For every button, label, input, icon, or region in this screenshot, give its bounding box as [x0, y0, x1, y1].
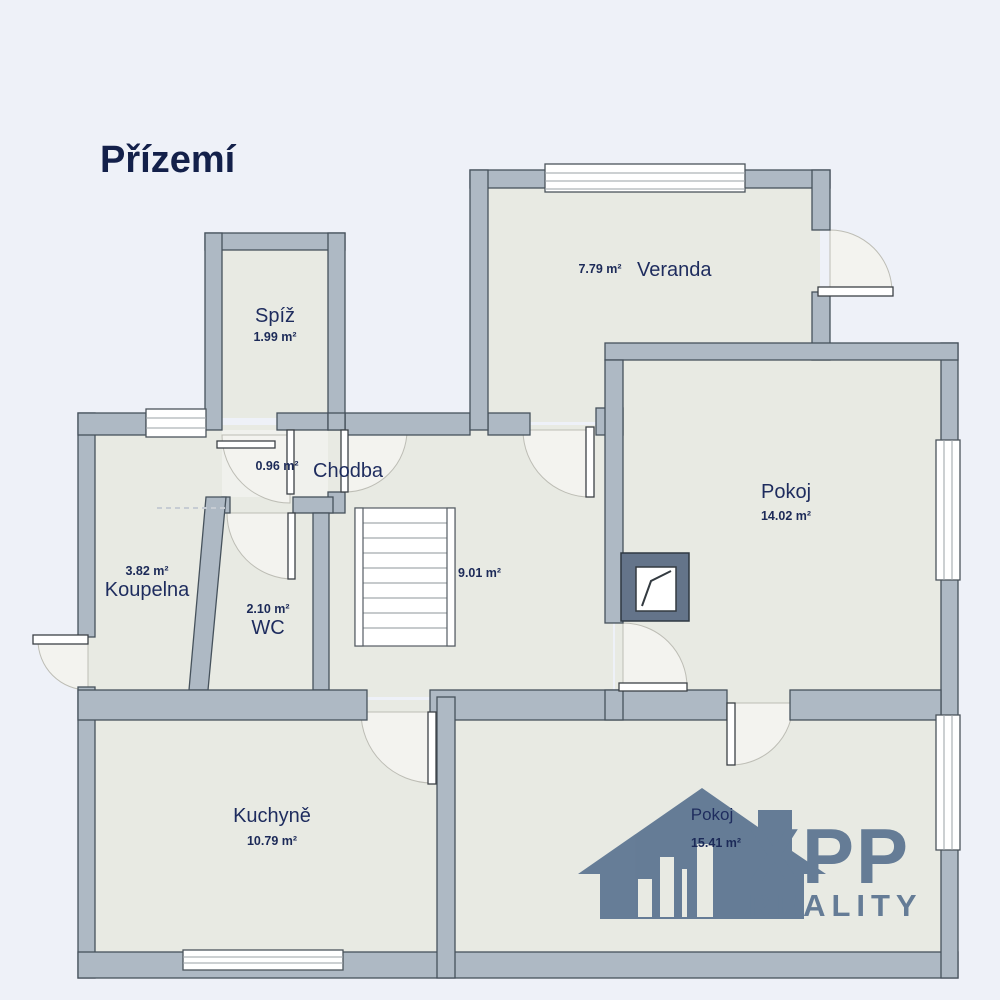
door-leaf-icon: [586, 427, 594, 497]
door-swing-icon: [38, 640, 88, 690]
room-label-wc: WC: [251, 617, 284, 639]
brand-name: XPP: [748, 812, 910, 900]
window-icon: [183, 950, 343, 970]
door-leaf-icon: [619, 683, 687, 691]
room-fill-veranda-sw: [480, 350, 613, 422]
room-label-chodba: Chodba: [313, 460, 384, 482]
vestibule-area: 0.96 m²: [255, 459, 298, 473]
room-area-spiz: 1.99 m²: [253, 330, 296, 344]
house-logo-bar: [682, 869, 687, 917]
chimney-icon: [621, 553, 689, 621]
door-swing-icon: [830, 230, 892, 292]
page-title: Přízemí: [100, 139, 237, 181]
room-area-pokoj2: 15.41 m²: [691, 836, 741, 850]
stairs-icon: [355, 508, 455, 646]
door-leaf-icon: [727, 703, 735, 765]
room-area-kuchyne: 10.79 m²: [247, 834, 297, 848]
room-label-pokoj2: Pokoj: [691, 805, 734, 824]
house-logo-bar: [697, 844, 713, 917]
room-label-kuchyne: Kuchyně: [233, 805, 311, 827]
room-label-koupelna: Koupelna: [105, 579, 190, 601]
window-icon: [146, 409, 206, 437]
brand-subtitle: REALITY: [748, 888, 923, 923]
door-leaf-icon: [288, 513, 295, 579]
window-icon: [936, 715, 960, 850]
window-icon: [545, 164, 745, 192]
floor-plan-svg: XPP REALITY Přízemí Spíž 1.99 m² 7.79 m²…: [0, 0, 1000, 1000]
door-leaf-icon: [818, 287, 893, 296]
room-label-spiz: Spíž: [255, 305, 295, 327]
room-label-veranda: Veranda: [637, 259, 712, 281]
room-area-koupelna: 3.82 m²: [125, 564, 168, 578]
room-area-chodba: 9.01 m²: [458, 566, 501, 580]
room-area-pokoj1: 14.02 m²: [761, 509, 811, 523]
house-logo-bar: [638, 879, 652, 917]
room-area-wc: 2.10 m²: [246, 602, 289, 616]
room-label-pokoj1: Pokoj: [761, 481, 811, 503]
window-icon: [936, 440, 960, 580]
door-leaf-icon: [428, 712, 436, 784]
door-leaf-icon: [33, 635, 88, 644]
floor-plan-page: XPP REALITY Přízemí Spíž 1.99 m² 7.79 m²…: [0, 0, 1000, 1000]
door-leaf-icon: [217, 441, 275, 448]
house-logo-bar: [660, 857, 674, 917]
room-area-veranda: 7.79 m²: [578, 262, 621, 276]
